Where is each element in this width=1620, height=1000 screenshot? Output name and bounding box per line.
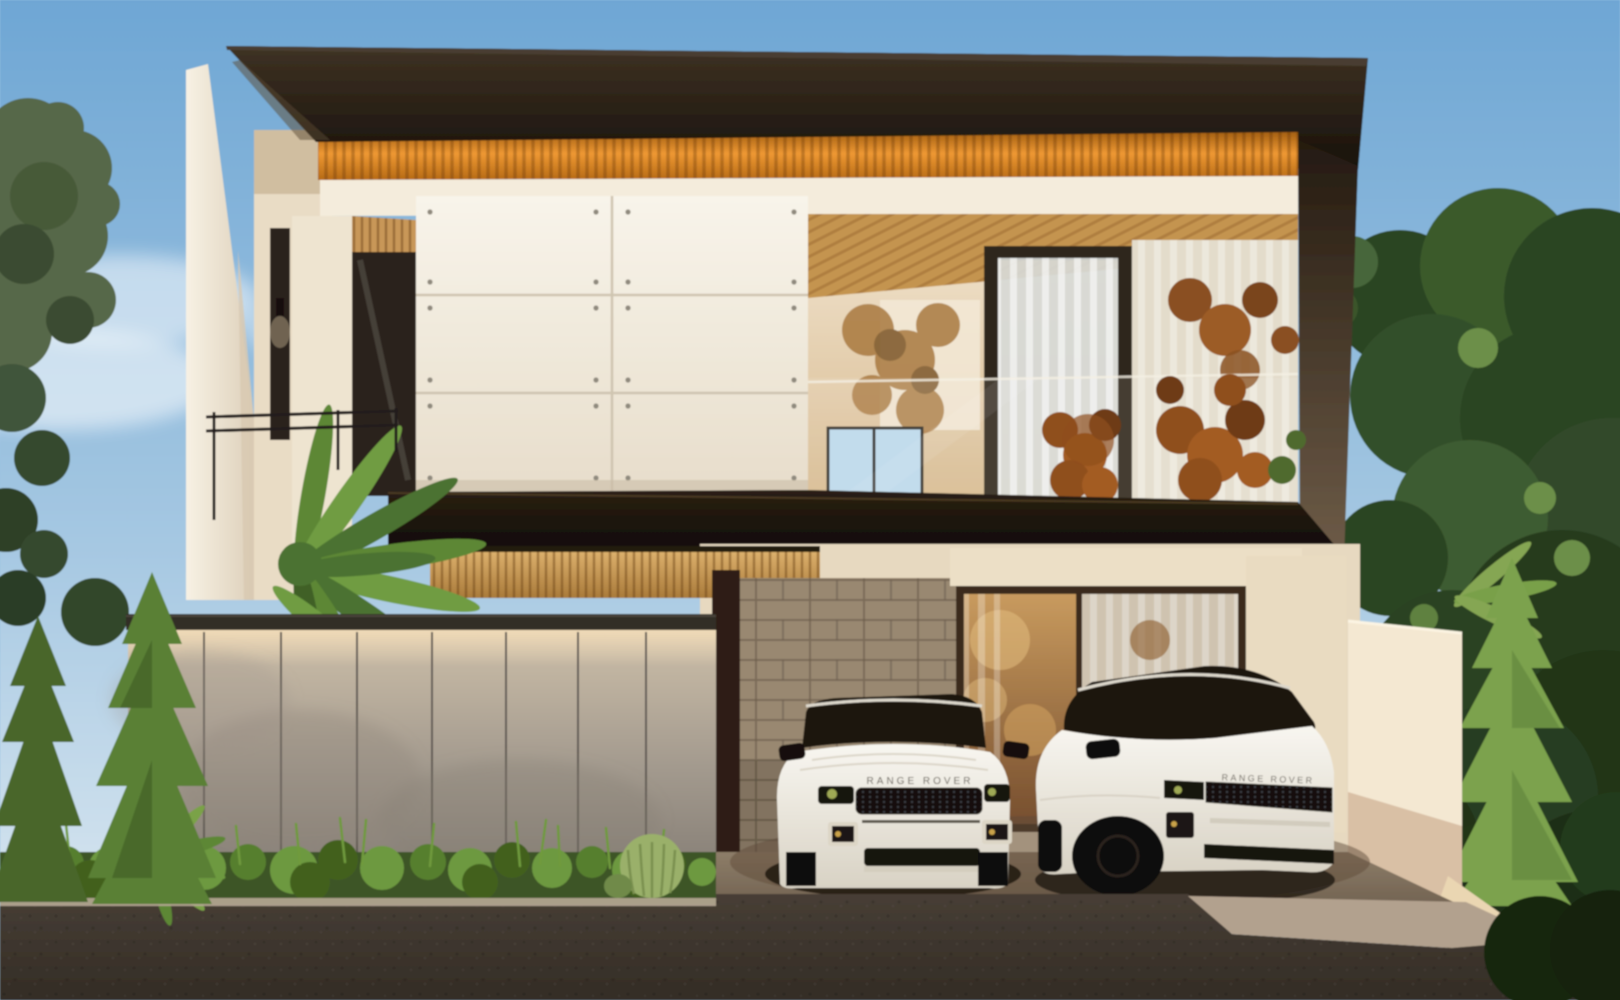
car-1-drl-left: [827, 789, 837, 799]
recess-wood-slats: [352, 216, 416, 256]
car-1-lower-lip: [864, 866, 980, 872]
wall-lamp-glow: [270, 316, 290, 348]
plant-reflection: [1130, 620, 1170, 660]
car-2-rear-wheel: [1038, 820, 1062, 872]
car-2-drl: [1174, 786, 1182, 794]
car-2-mirror: [1085, 738, 1121, 759]
soffit-dark-line: [430, 546, 820, 552]
car-1-fog-bulb-right: [989, 829, 995, 835]
cactus-small: [604, 874, 632, 898]
car-1-badge: RANGE ROVER: [867, 776, 974, 787]
balcony: [808, 214, 1306, 505]
car-1-grille-mesh: [856, 788, 982, 814]
car-1-drl-right: [988, 788, 996, 796]
entry-slot-shadow: [712, 570, 740, 890]
car-2-fog-vent: [1166, 812, 1194, 838]
car-1-wheel-right: [978, 852, 1008, 886]
car-1-bumper-line: [862, 820, 980, 823]
scene-canvas: RANGE ROVER: [0, 0, 1620, 1000]
villa-render: RANGE ROVER: [0, 0, 1620, 1000]
car-2-headlight: [1164, 780, 1204, 800]
car-1-skid-plate: [864, 848, 980, 866]
car-1-fog-bulb-left: [835, 831, 841, 837]
car-2-fog-bulb: [1171, 821, 1177, 827]
door-header: [984, 246, 1132, 260]
wall-lamp: [276, 298, 284, 316]
car-2-front-wheel: [1072, 816, 1164, 896]
car-1-wheel-left: [786, 852, 816, 886]
panel-bottom-shade: [416, 480, 808, 492]
car-1-headlight-right: [984, 784, 1010, 802]
car-2: RANGE ROVER: [1035, 666, 1335, 905]
